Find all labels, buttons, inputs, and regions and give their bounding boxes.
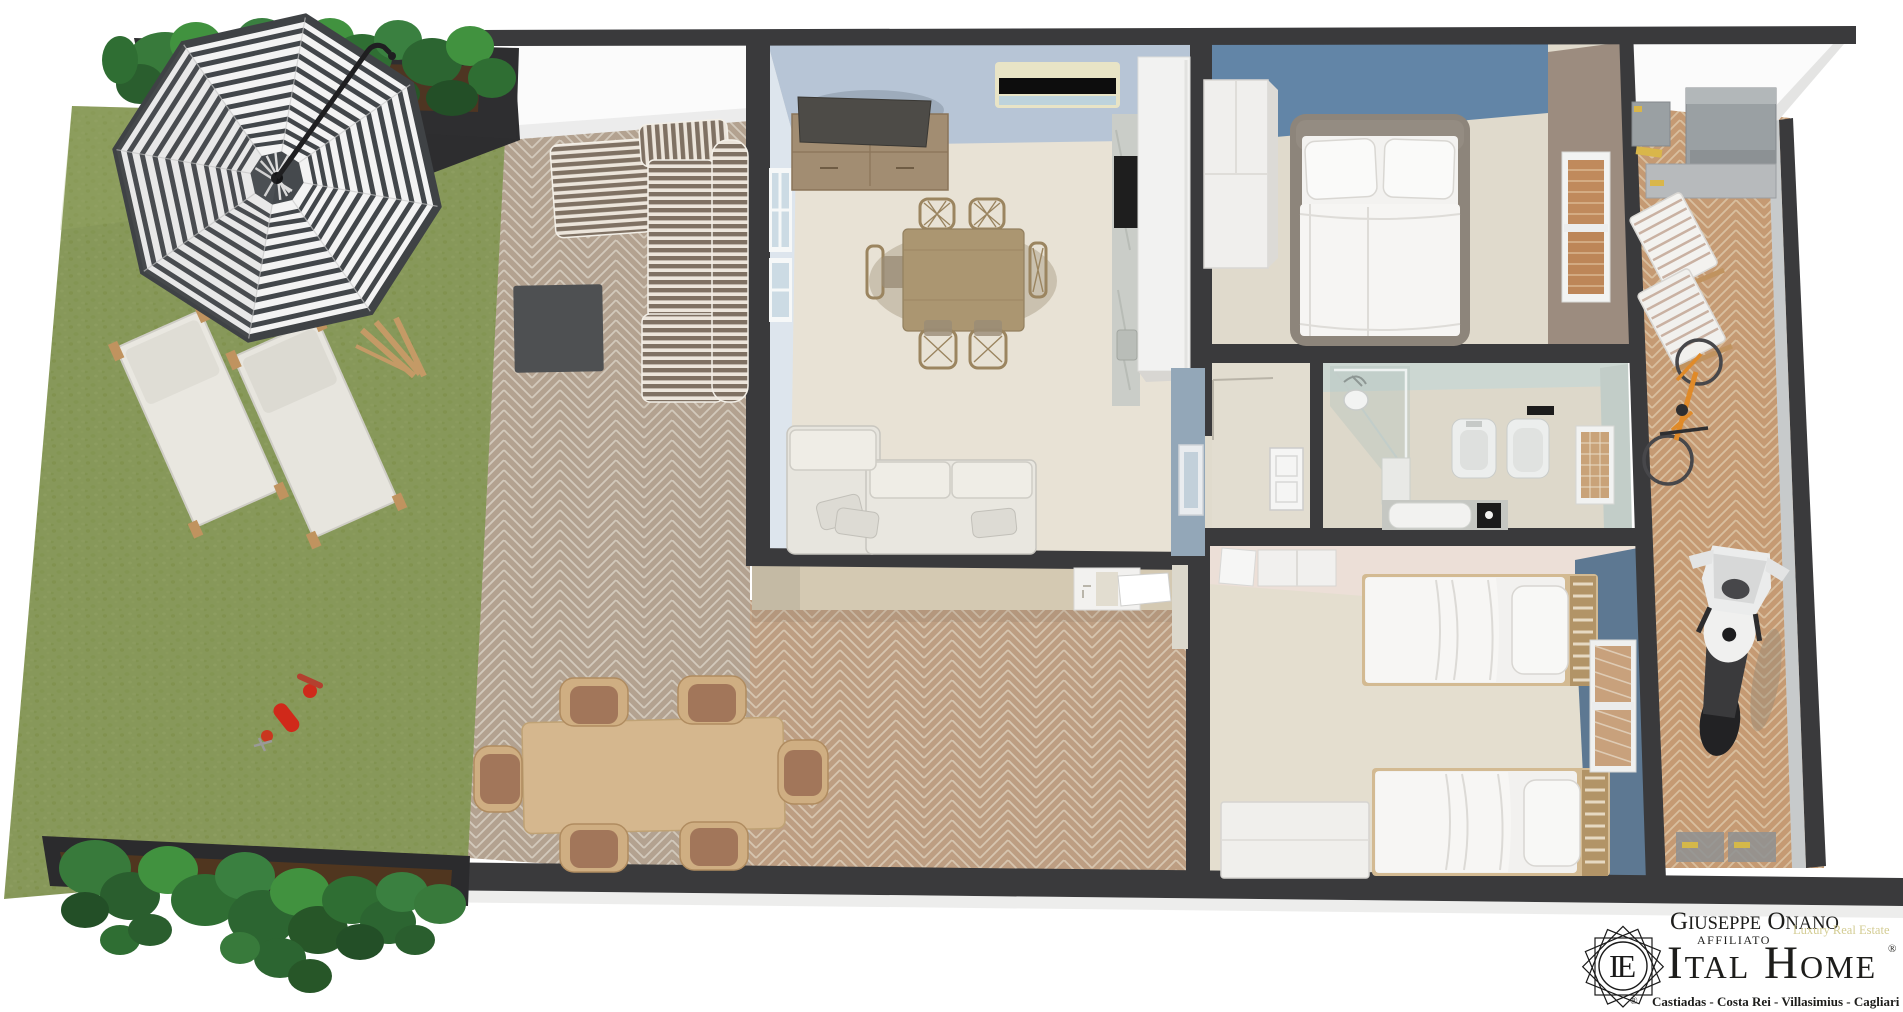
svg-text:IE: IE: [1609, 948, 1636, 984]
svg-text:Luxury Real Estate: Luxury Real Estate: [1793, 923, 1890, 937]
svg-text:®: ®: [1630, 996, 1638, 1007]
svg-text:Castiadas - Costa Rei - Villas: Castiadas - Costa Rei - Villasimius - Ca…: [1652, 994, 1900, 1009]
svg-text:®: ®: [1888, 943, 1896, 955]
